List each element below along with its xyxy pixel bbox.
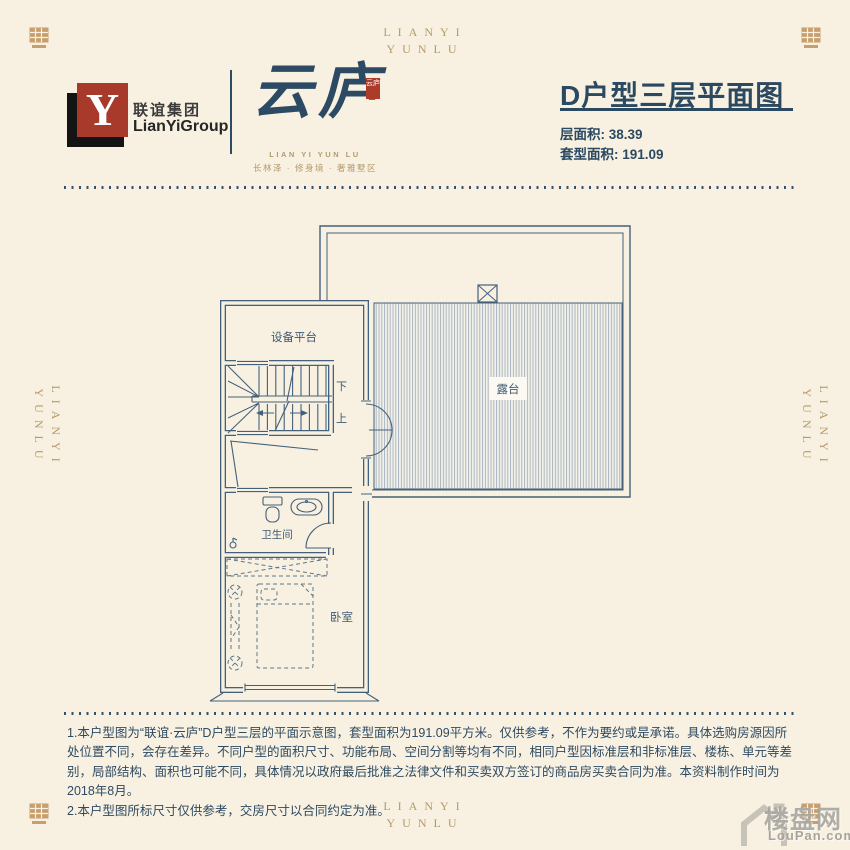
bathroom-door <box>306 523 331 548</box>
vent-box <box>478 285 497 302</box>
label-terrace: 露台 <box>497 382 520 396</box>
stair-winders <box>228 366 259 433</box>
floor-plan-drawing: 设备平台 露台 卫生间 卧室 下 上 <box>0 0 850 850</box>
disclaimer-notes: 1.本户型图为“联谊·云庐”D户型三层的平面示意图，套型面积为191.09平方米… <box>67 724 793 821</box>
wardrobe-dashed <box>227 559 327 576</box>
label-equipment-platform: 设备平台 <box>271 330 317 344</box>
sink-icon <box>291 499 322 515</box>
label-bedroom: 卧室 <box>330 610 353 624</box>
shaft-lines <box>237 361 268 491</box>
disclaimer-note-1: 1.本户型图为“联谊·云庐”D户型三层的平面示意图，套型面积为191.09平方米… <box>67 724 793 802</box>
toilet-icon <box>263 497 282 522</box>
bed-dashed <box>257 584 313 668</box>
wall-openings <box>236 359 372 694</box>
floor-plan-poster: LIANYI YUNLU LIANYI YUNLU LIANYI YUNLU L… <box>0 0 850 850</box>
label-bathroom: 卫生间 <box>261 528 293 541</box>
plant-symbols-dashed <box>228 585 242 670</box>
disclaimer-note-2: 2.本户型图所标尺寸仅供参考，交房尺寸以合同约定为准。 <box>67 802 793 821</box>
label-stairs-down: 下 <box>336 381 347 393</box>
stair-rail <box>252 396 332 402</box>
curtain-dashed <box>231 603 239 652</box>
closet-lines <box>230 441 318 487</box>
watermark-en: LouPan.com <box>768 828 850 843</box>
floor-drain-icon <box>230 538 237 548</box>
label-stairs-up: 上 <box>336 412 347 425</box>
watermark: 楼盘网 LouPan.com <box>738 798 850 850</box>
